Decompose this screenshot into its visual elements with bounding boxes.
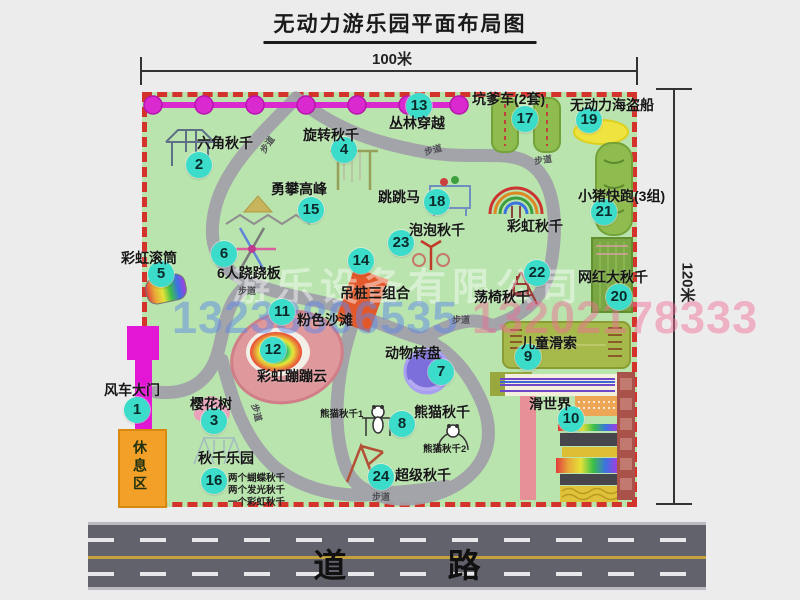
- item-label-24: 超级秋千: [395, 465, 451, 485]
- item-label-7: 动物转盘: [385, 343, 441, 363]
- item-badge-24: 24: [368, 464, 394, 490]
- item-badge-14: 14: [348, 248, 374, 274]
- item-label-10: 滑世界: [529, 394, 571, 414]
- item-label-15: 勇攀高峰: [271, 179, 327, 199]
- item-label-14: 吊桩三组合: [340, 283, 410, 303]
- labels-overlay: 1风车大门2六角秋千3樱花树4旋转秋千5彩虹滚筒66人跷跷板7动物转盘8熊猫秋千…: [0, 0, 800, 600]
- road-label: 道 路: [267, 539, 526, 587]
- item-badge-8: 8: [389, 411, 415, 437]
- walkway-label-2: 步道: [533, 152, 553, 167]
- item-label-2: 六角秋千: [197, 133, 253, 153]
- road: 道 路: [88, 522, 706, 590]
- item-badge-17: 17: [512, 106, 538, 132]
- item-badge-12: 12: [260, 337, 286, 363]
- walkway-label-4: 步道: [452, 313, 470, 326]
- item-label-8: 熊猫秋千: [414, 402, 470, 422]
- item-label-22: 荡椅秋千: [474, 287, 530, 307]
- item-badge-1: 1: [124, 397, 150, 423]
- extra-label-1: 熊猫秋千1: [320, 406, 363, 420]
- item-badge-22: 22: [524, 260, 550, 286]
- item-label-3: 樱花树: [190, 394, 232, 414]
- item-badge-18: 18: [424, 189, 450, 215]
- item-label-9: 儿童滑索: [521, 333, 577, 353]
- extra-label-5: 一个彩虹秋千: [228, 494, 285, 508]
- item-label-13: 丛林穿越: [389, 113, 445, 133]
- item-label-4: 旋转秋千: [303, 125, 359, 145]
- item-badge-16: 16: [201, 468, 227, 494]
- extra-label-0: 彩虹秋千: [507, 216, 563, 236]
- item-label-20: 网红大秋千: [578, 267, 648, 287]
- walkway-label-1: 步道: [423, 141, 444, 158]
- item-label-12: 彩虹蹦蹦云: [257, 366, 327, 386]
- item-label-21: 小猪快跑(3组): [578, 186, 665, 206]
- walkway-label-0: 步道: [257, 133, 278, 155]
- park-plan-image: 无动力游乐园平面布局图 100米 120米: [0, 0, 800, 600]
- item-badge-11: 11: [269, 299, 295, 325]
- item-label-5: 彩虹滚筒: [121, 248, 177, 268]
- item-label-23: 泡泡秋千: [409, 220, 465, 240]
- item-label-17: 坑爹车(2套): [472, 89, 545, 109]
- item-label-18: 跳跳马: [378, 187, 420, 207]
- item-badge-2: 2: [186, 152, 212, 178]
- item-badge-20: 20: [606, 284, 632, 310]
- extra-label-2: 熊猫秋千2: [423, 441, 466, 455]
- item-badge-15: 15: [298, 197, 324, 223]
- walkway-label-5: 步道: [248, 402, 265, 423]
- item-label-19: 无动力海盗船: [570, 95, 654, 115]
- item-label-6: 6人跷跷板: [217, 263, 281, 283]
- item-label-1: 风车大门: [104, 380, 160, 400]
- item-label-16: 秋千乐园: [198, 448, 254, 468]
- item-label-11: 粉色沙滩: [297, 310, 353, 330]
- walkway-label-6: 步道: [372, 490, 390, 503]
- walkway-label-3: 步道: [238, 284, 256, 297]
